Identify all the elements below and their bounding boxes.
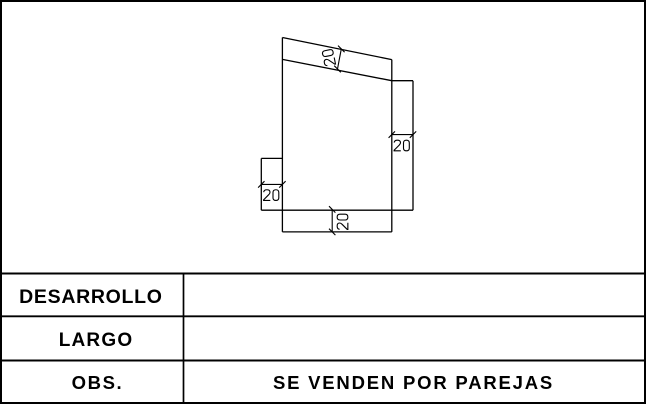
svg-text:SE VENDEN POR PAREJAS: SE VENDEN POR PAREJAS [273,372,554,393]
svg-text:DESARROLLO: DESARROLLO [19,286,163,308]
svg-text:LARGO: LARGO [59,330,134,351]
svg-text:OBS.: OBS. [72,372,124,393]
